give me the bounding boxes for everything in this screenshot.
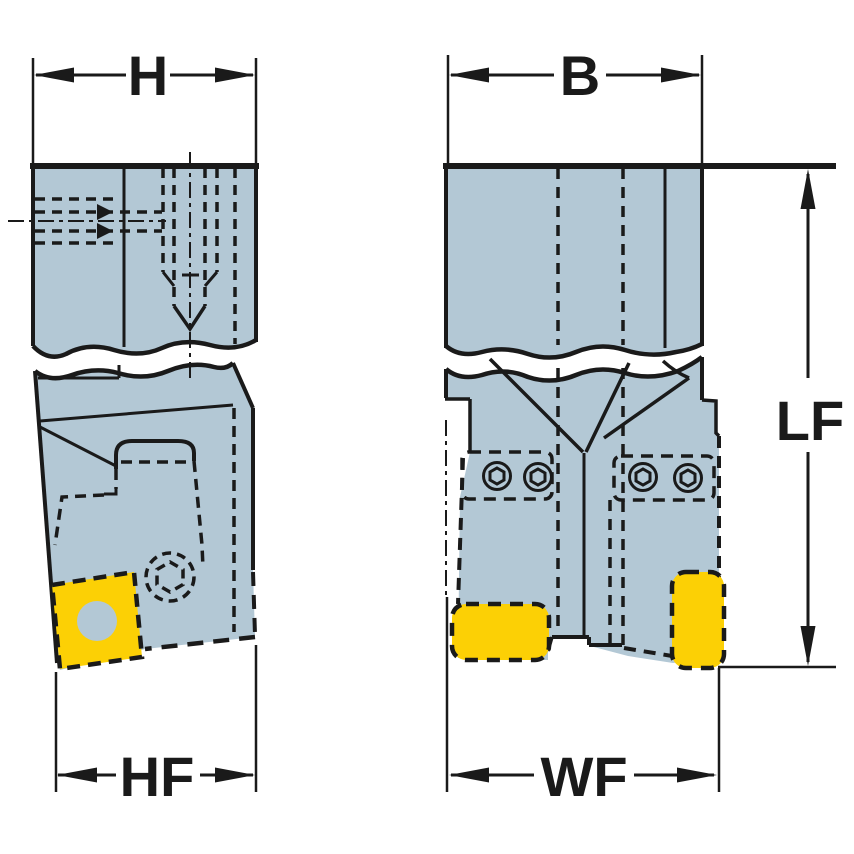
arrow-left-icon bbox=[57, 768, 97, 783]
arrow-left-icon bbox=[34, 68, 74, 83]
cutting-insert-front-right bbox=[672, 572, 724, 668]
tool-holder-dimension-drawing: H B LF HF WF bbox=[0, 0, 854, 854]
arrow-right-icon bbox=[215, 68, 255, 83]
arrow-right-icon bbox=[661, 68, 701, 83]
dimension-lf: LF bbox=[718, 169, 844, 667]
drawing-canvas: H B LF HF WF bbox=[0, 0, 854, 854]
cutting-insert-front-left bbox=[452, 604, 549, 660]
side-view-shank-body bbox=[33, 168, 256, 357]
dimension-hf: HF bbox=[56, 645, 256, 808]
side-view bbox=[8, 152, 259, 670]
arrow-right-icon bbox=[215, 768, 255, 783]
dimension-h: H bbox=[33, 44, 256, 164]
arrow-down-icon bbox=[801, 626, 816, 666]
dim-label-lf: LF bbox=[776, 389, 844, 452]
arrow-right-icon bbox=[677, 768, 717, 783]
dim-label-b: B bbox=[560, 44, 600, 107]
dim-label-wf: WF bbox=[540, 745, 627, 808]
dim-label-h: H bbox=[128, 44, 168, 107]
arrow-left-icon bbox=[449, 768, 489, 783]
cutting-insert-side bbox=[52, 572, 142, 669]
insert-hole bbox=[77, 601, 117, 641]
arrow-left-icon bbox=[449, 68, 489, 83]
dim-label-hf: HF bbox=[120, 745, 195, 808]
arrow-up-icon bbox=[801, 169, 816, 209]
dimension-b: B bbox=[448, 44, 702, 164]
